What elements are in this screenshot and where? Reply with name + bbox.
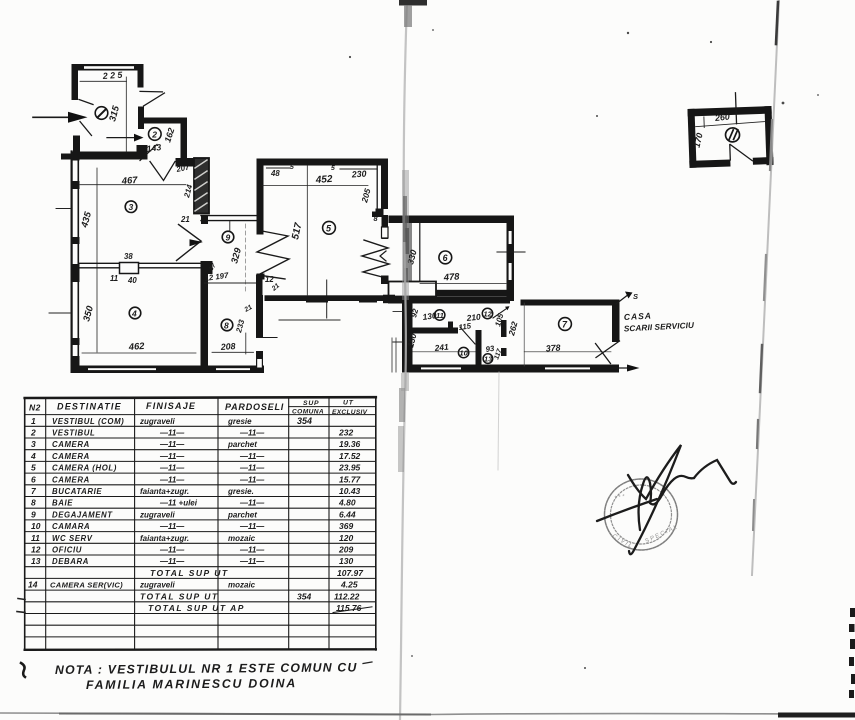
svg-text:4: 4 <box>30 451 36 461</box>
svg-text:CAMERA: CAMERA <box>52 452 90 461</box>
svg-text:—11—: —11— <box>239 499 265 508</box>
svg-text:S: S <box>633 292 638 301</box>
svg-text:12: 12 <box>483 310 492 319</box>
svg-text:CAMARA: CAMARA <box>52 522 90 531</box>
svg-text:40: 40 <box>127 276 137 285</box>
svg-text:9: 9 <box>31 509 36 519</box>
svg-text:zugraveli: zugraveli <box>139 581 175 590</box>
svg-text:—11—: —11— <box>159 475 185 484</box>
svg-text:—11—: —11— <box>159 546 185 555</box>
svg-text:11: 11 <box>436 311 444 320</box>
svg-text:17.52: 17.52 <box>339 451 361 461</box>
svg-text:4.25: 4.25 <box>340 580 358 590</box>
svg-text:208: 208 <box>219 341 235 352</box>
svg-text:—11 +ulei: —11 +ulei <box>159 499 198 508</box>
svg-text:zugraveli: zugraveli <box>139 510 175 519</box>
svg-text:14: 14 <box>28 580 38 590</box>
svg-text:—11—: —11— <box>239 475 265 484</box>
svg-text:VESTIBUL: VESTIBUL <box>52 429 95 438</box>
svg-text:WC SERV: WC SERV <box>52 534 93 543</box>
svg-text:2: 2 <box>30 428 36 438</box>
svg-text:232: 232 <box>338 428 353 438</box>
svg-text:—11—: —11— <box>239 522 265 531</box>
svg-text:10.43: 10.43 <box>339 486 361 496</box>
svg-text:369: 369 <box>339 521 353 531</box>
svg-text:10: 10 <box>459 349 468 358</box>
svg-text:faianta+zugr.: faianta+zugr. <box>140 487 189 496</box>
svg-text:120: 120 <box>339 533 353 543</box>
svg-text:2: 2 <box>151 129 157 139</box>
svg-text:UT: UT <box>343 400 354 407</box>
svg-text:—11—: —11— <box>159 557 185 566</box>
svg-text:PARDOSELI: PARDOSELI <box>225 402 284 412</box>
svg-text:CAMERA SER(VIC): CAMERA SER(VIC) <box>50 581 123 590</box>
svg-text:mozaic: mozaic <box>228 581 256 590</box>
svg-text:4: 4 <box>131 309 137 319</box>
svg-text:—11—: —11— <box>159 464 185 473</box>
svg-text:VESTIBUL (COM): VESTIBUL (COM) <box>52 417 124 426</box>
svg-text:354: 354 <box>297 591 311 601</box>
svg-text:13: 13 <box>484 355 493 364</box>
svg-text:230: 230 <box>350 168 366 179</box>
svg-text:260: 260 <box>714 111 731 123</box>
svg-text:zugraveli: zugraveli <box>139 417 175 426</box>
svg-text:354: 354 <box>297 416 312 426</box>
svg-text:CAMERA (HOL): CAMERA (HOL) <box>52 464 117 473</box>
svg-text:NOTA : VESTIBULUL NR 1 ESTE CO: NOTA : VESTIBULUL NR 1 ESTE COMUN CU <box>55 660 358 677</box>
svg-text:6: 6 <box>443 253 448 263</box>
svg-text:12: 12 <box>31 545 41 555</box>
svg-text:—11—: —11— <box>159 452 185 461</box>
svg-text:10: 10 <box>31 521 41 531</box>
svg-text:15.77: 15.77 <box>339 474 362 484</box>
svg-text:478: 478 <box>442 270 460 282</box>
svg-text:—11—: —11— <box>239 452 265 461</box>
svg-text:OFICIU: OFICIU <box>52 546 82 555</box>
svg-text:—11—: —11— <box>239 429 265 438</box>
svg-text:DEBARA: DEBARA <box>52 557 89 566</box>
svg-text:—11—: —11— <box>159 429 185 438</box>
svg-text:462: 462 <box>127 340 145 352</box>
svg-text:8: 8 <box>31 498 36 508</box>
svg-text:gresie: gresie <box>227 417 252 426</box>
svg-text:—11—: —11— <box>239 546 265 555</box>
svg-text:2 2 5: 2 2 5 <box>101 70 122 81</box>
svg-text:3: 3 <box>31 439 36 449</box>
svg-text:19.36: 19.36 <box>339 439 361 449</box>
svg-text:21: 21 <box>180 215 190 224</box>
svg-text:3: 3 <box>129 202 134 212</box>
svg-text:13: 13 <box>31 556 41 566</box>
svg-text:467: 467 <box>120 174 138 186</box>
svg-text:130: 130 <box>339 556 353 566</box>
svg-text:FAMILIA MARINESCU DOINA: FAMILIA MARINESCU DOINA <box>86 676 297 692</box>
svg-text:11: 11 <box>31 533 40 543</box>
svg-text:6: 6 <box>31 474 36 484</box>
svg-text:8: 8 <box>224 321 229 331</box>
svg-text:CAMERA: CAMERA <box>52 475 90 484</box>
svg-text:5: 5 <box>331 165 335 172</box>
svg-text:11: 11 <box>110 274 118 283</box>
svg-text:—11—: —11— <box>239 557 265 566</box>
svg-text:COMUNA: COMUNA <box>292 409 324 416</box>
svg-text:38: 38 <box>124 252 133 261</box>
svg-text:9: 9 <box>226 233 231 243</box>
svg-text:241: 241 <box>433 342 449 354</box>
svg-text:SUP: SUP <box>303 400 319 407</box>
svg-text:—11—: —11— <box>239 464 265 473</box>
svg-text:gresie.: gresie. <box>227 487 254 496</box>
svg-text:130: 130 <box>422 310 438 322</box>
svg-text:4.80: 4.80 <box>338 498 356 508</box>
svg-text:CASA: CASA <box>624 311 653 322</box>
svg-text:1: 1 <box>31 416 36 426</box>
svg-text:FINISAJE: FINISAJE <box>146 401 196 411</box>
svg-text:BUCATARIE: BUCATARIE <box>52 487 102 496</box>
svg-text:5: 5 <box>31 463 36 473</box>
svg-text:DESTINATIE: DESTINATIE <box>57 402 122 412</box>
svg-text:CAMERA: CAMERA <box>52 440 90 449</box>
svg-text:5: 5 <box>290 164 294 171</box>
svg-text:TOTAL SUP UT AP: TOTAL SUP UT AP <box>148 603 245 613</box>
svg-text:EXCLUSIV: EXCLUSIV <box>332 409 368 416</box>
svg-text:209: 209 <box>338 545 353 555</box>
svg-text:143: 143 <box>146 142 162 154</box>
svg-text:107.97: 107.97 <box>337 568 364 578</box>
svg-text:parchet: parchet <box>227 510 257 519</box>
svg-text:faianta+zugr.: faianta+zugr. <box>140 534 189 543</box>
svg-text:N2: N2 <box>29 403 41 413</box>
svg-text:23.95: 23.95 <box>338 463 361 473</box>
svg-text:—11—: —11— <box>159 440 185 449</box>
svg-text:452: 452 <box>314 174 333 186</box>
svg-text:DEGAJAMENT: DEGAJAMENT <box>52 510 113 519</box>
svg-text:112.22: 112.22 <box>334 591 360 601</box>
svg-text:TOTAL SUP UT: TOTAL SUP UT <box>150 568 229 578</box>
svg-text:parchet: parchet <box>227 440 257 449</box>
svg-text:48: 48 <box>270 169 280 178</box>
svg-text:mozaic: mozaic <box>228 534 256 543</box>
svg-text:—11—: —11— <box>159 522 185 531</box>
svg-text:TOTAL SUP UT: TOTAL SUP UT <box>140 591 219 601</box>
svg-text:BAIE: BAIE <box>52 499 73 508</box>
svg-text:210: 210 <box>465 312 481 324</box>
svg-text:6.44: 6.44 <box>339 509 356 519</box>
